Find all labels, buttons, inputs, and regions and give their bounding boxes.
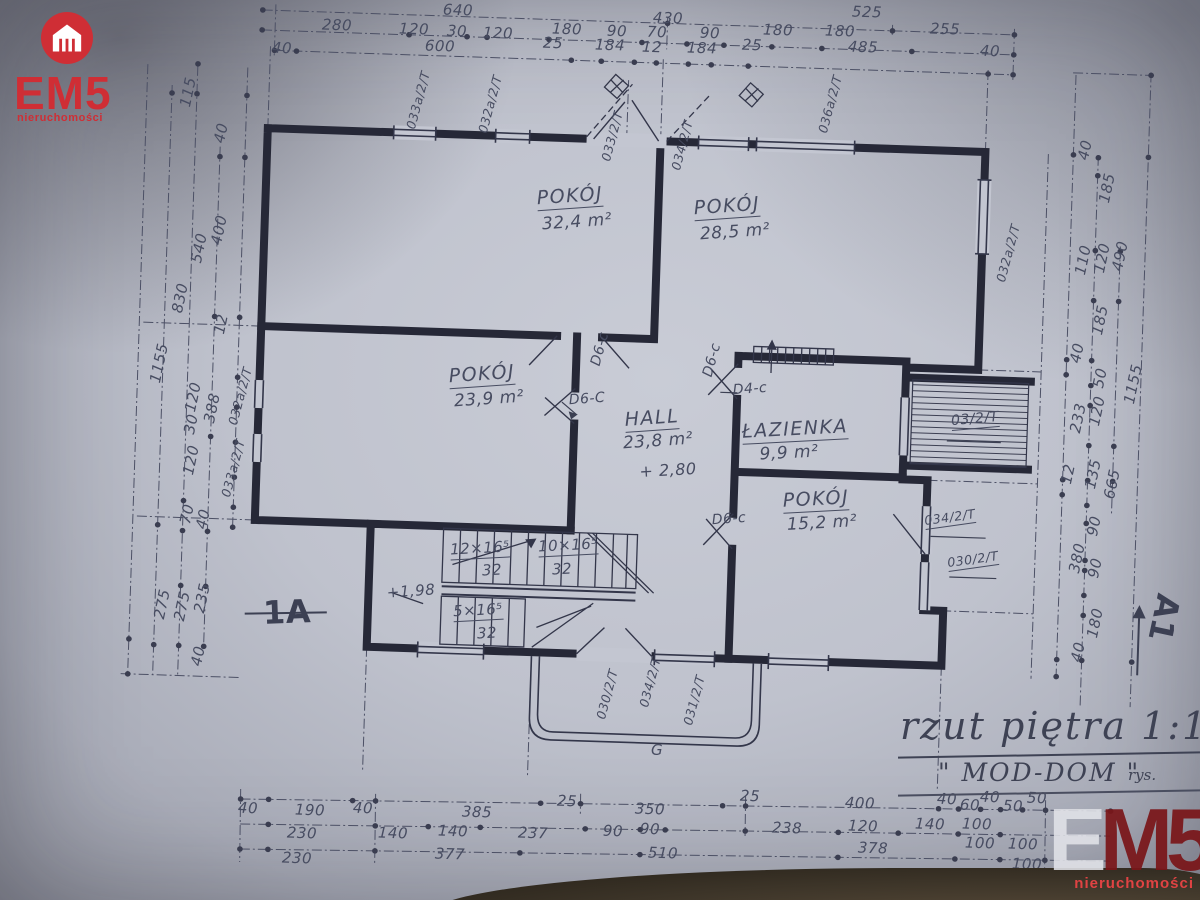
dimension-label: 40 — [272, 39, 293, 58]
dimension-label: 60 — [960, 796, 981, 815]
dimension-label: 350 — [635, 799, 666, 818]
stair-fraction: 10×16⁵ — [538, 534, 599, 557]
dimension-label: 255 — [930, 19, 961, 38]
door-label: D6-c — [711, 510, 746, 528]
em5-watermark-text: EM5 — [1018, 800, 1200, 879]
dimension-label: 237 — [518, 823, 549, 842]
room-name: POKÓJ — [448, 361, 516, 390]
dimension-label: 230 — [282, 848, 313, 867]
dimension-label: 140 — [378, 823, 409, 842]
dimension-label: 100 — [962, 814, 993, 833]
dimension-label: 120 — [848, 816, 879, 835]
room-area: 15,2 m² — [786, 511, 857, 535]
dimension-label: 40 — [980, 788, 1001, 807]
dimension-label: 184 — [687, 38, 718, 57]
project-name: " MOD-DOM " — [938, 758, 1140, 787]
dimension-label: 140 — [438, 821, 469, 840]
dimension-label: 40 — [238, 799, 259, 818]
dimension-label: 90 — [603, 822, 624, 841]
stair-fraction: 12×16⁵ — [450, 537, 511, 560]
dimension-label: 40 — [937, 790, 958, 809]
stair-fraction: 32 — [481, 560, 502, 579]
stair-fraction: 32 — [476, 623, 497, 642]
dimension-label: 385 — [462, 802, 493, 821]
dimension-label: 25 — [557, 792, 578, 811]
dimension-label: 190 — [295, 800, 326, 819]
door-label: D4-c — [732, 380, 767, 398]
door-label: D6-C — [568, 390, 606, 409]
dimension-label: 25 — [742, 36, 763, 55]
room-name: POKÓJ — [536, 183, 604, 212]
level-mark: + 2,80 — [639, 459, 697, 481]
dimension-label: 600 — [425, 36, 456, 55]
dimension-label: 100 — [965, 833, 996, 852]
dimension-label: 25 — [543, 34, 564, 53]
dimension-label: 280 — [322, 15, 353, 34]
dimension-label: 485 — [848, 37, 879, 56]
blueprint-photo: 6404305252801203012018090709018018025540… — [0, 0, 1200, 900]
em5-house-icon — [50, 21, 84, 55]
dimension-label: 510 — [648, 843, 679, 862]
dimension-label: 184 — [595, 35, 626, 54]
dimension-label: 120 — [483, 23, 514, 42]
dimension-label: 525 — [852, 2, 883, 21]
stair-fraction: 32 — [551, 559, 572, 578]
section-mark: 1A — [262, 592, 311, 632]
em5-watermark: EM5 nieruchomości — [1018, 800, 1200, 892]
stair-fraction: 5×16⁵ — [453, 600, 504, 623]
dimension-label: 40 — [353, 799, 374, 818]
dimension-label: 40 — [980, 42, 1001, 61]
dimension-label: 400 — [845, 793, 876, 812]
dimension-label: 378 — [858, 838, 889, 857]
level-mark: +1,98 — [386, 580, 436, 601]
dimension-label: 230 — [287, 823, 318, 842]
room-name: HALL — [624, 405, 680, 433]
room-name: POKÓJ — [693, 193, 761, 222]
room-name: POKÓJ — [782, 486, 850, 513]
dimension-label: 180 — [763, 20, 794, 39]
em5-watermark-tagline: nieruchomości — [1018, 875, 1194, 892]
watermark-letters-m5: M5 — [1100, 790, 1200, 889]
dimension-label: 140 — [915, 814, 946, 833]
drawing-title: rzut piętra 1:100 — [900, 704, 1200, 748]
dimension-label: 25 — [740, 787, 761, 806]
author-label: rys. — [1128, 766, 1156, 784]
dimension-label: 377 — [435, 844, 466, 863]
room-area: 9,9 m² — [759, 441, 819, 464]
dimension-label: 640 — [443, 0, 474, 19]
em5-logo-circle — [41, 12, 93, 64]
dimension-label: 238 — [772, 818, 803, 837]
em5-tagline: nieruchomości — [17, 112, 103, 124]
watermark-letter-e: E — [1048, 790, 1100, 889]
dimension-label: 12 — [642, 38, 663, 57]
em5-logo: EM5 nieruchomości — [0, 0, 170, 140]
dimension-label: 90 — [640, 820, 661, 839]
door-label: G — [651, 741, 663, 759]
